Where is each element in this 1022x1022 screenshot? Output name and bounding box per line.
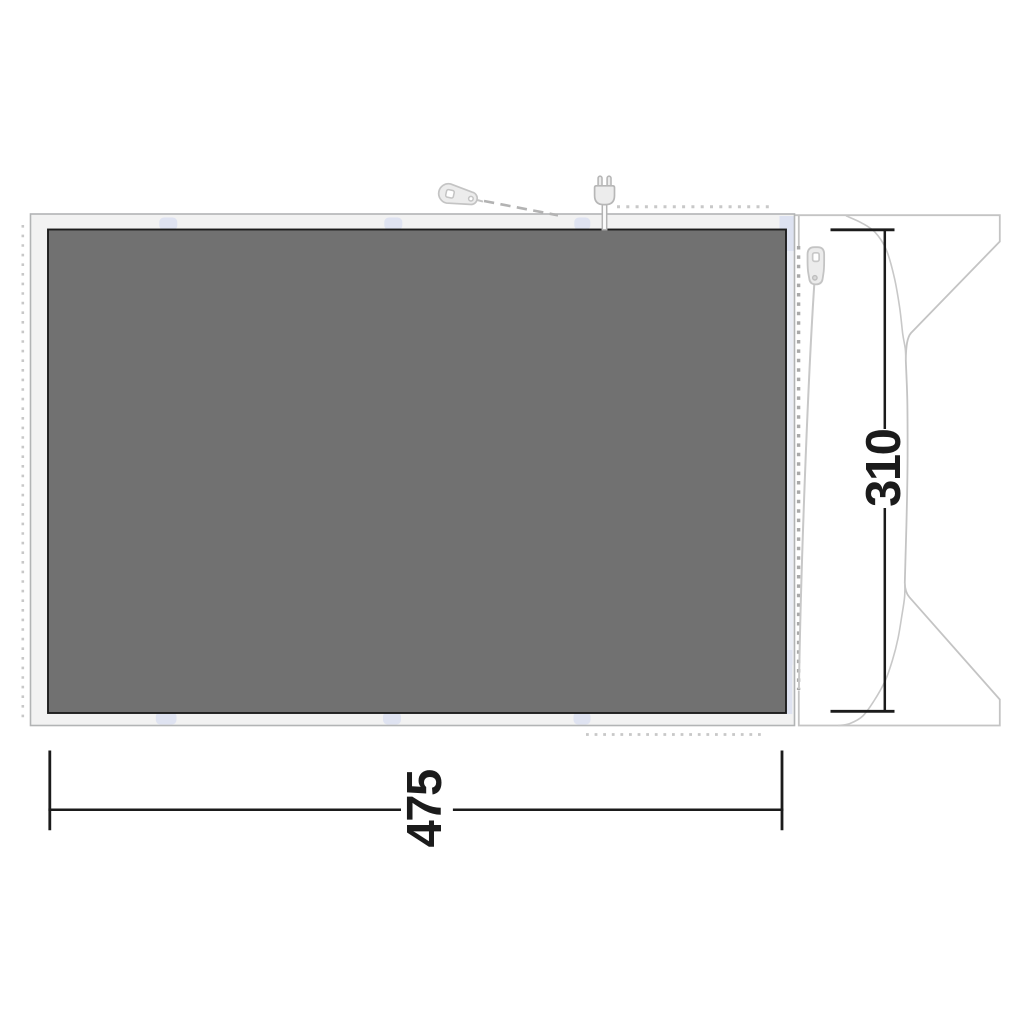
svg-text:310: 310 [857,429,911,507]
svg-text:475: 475 [398,770,452,848]
